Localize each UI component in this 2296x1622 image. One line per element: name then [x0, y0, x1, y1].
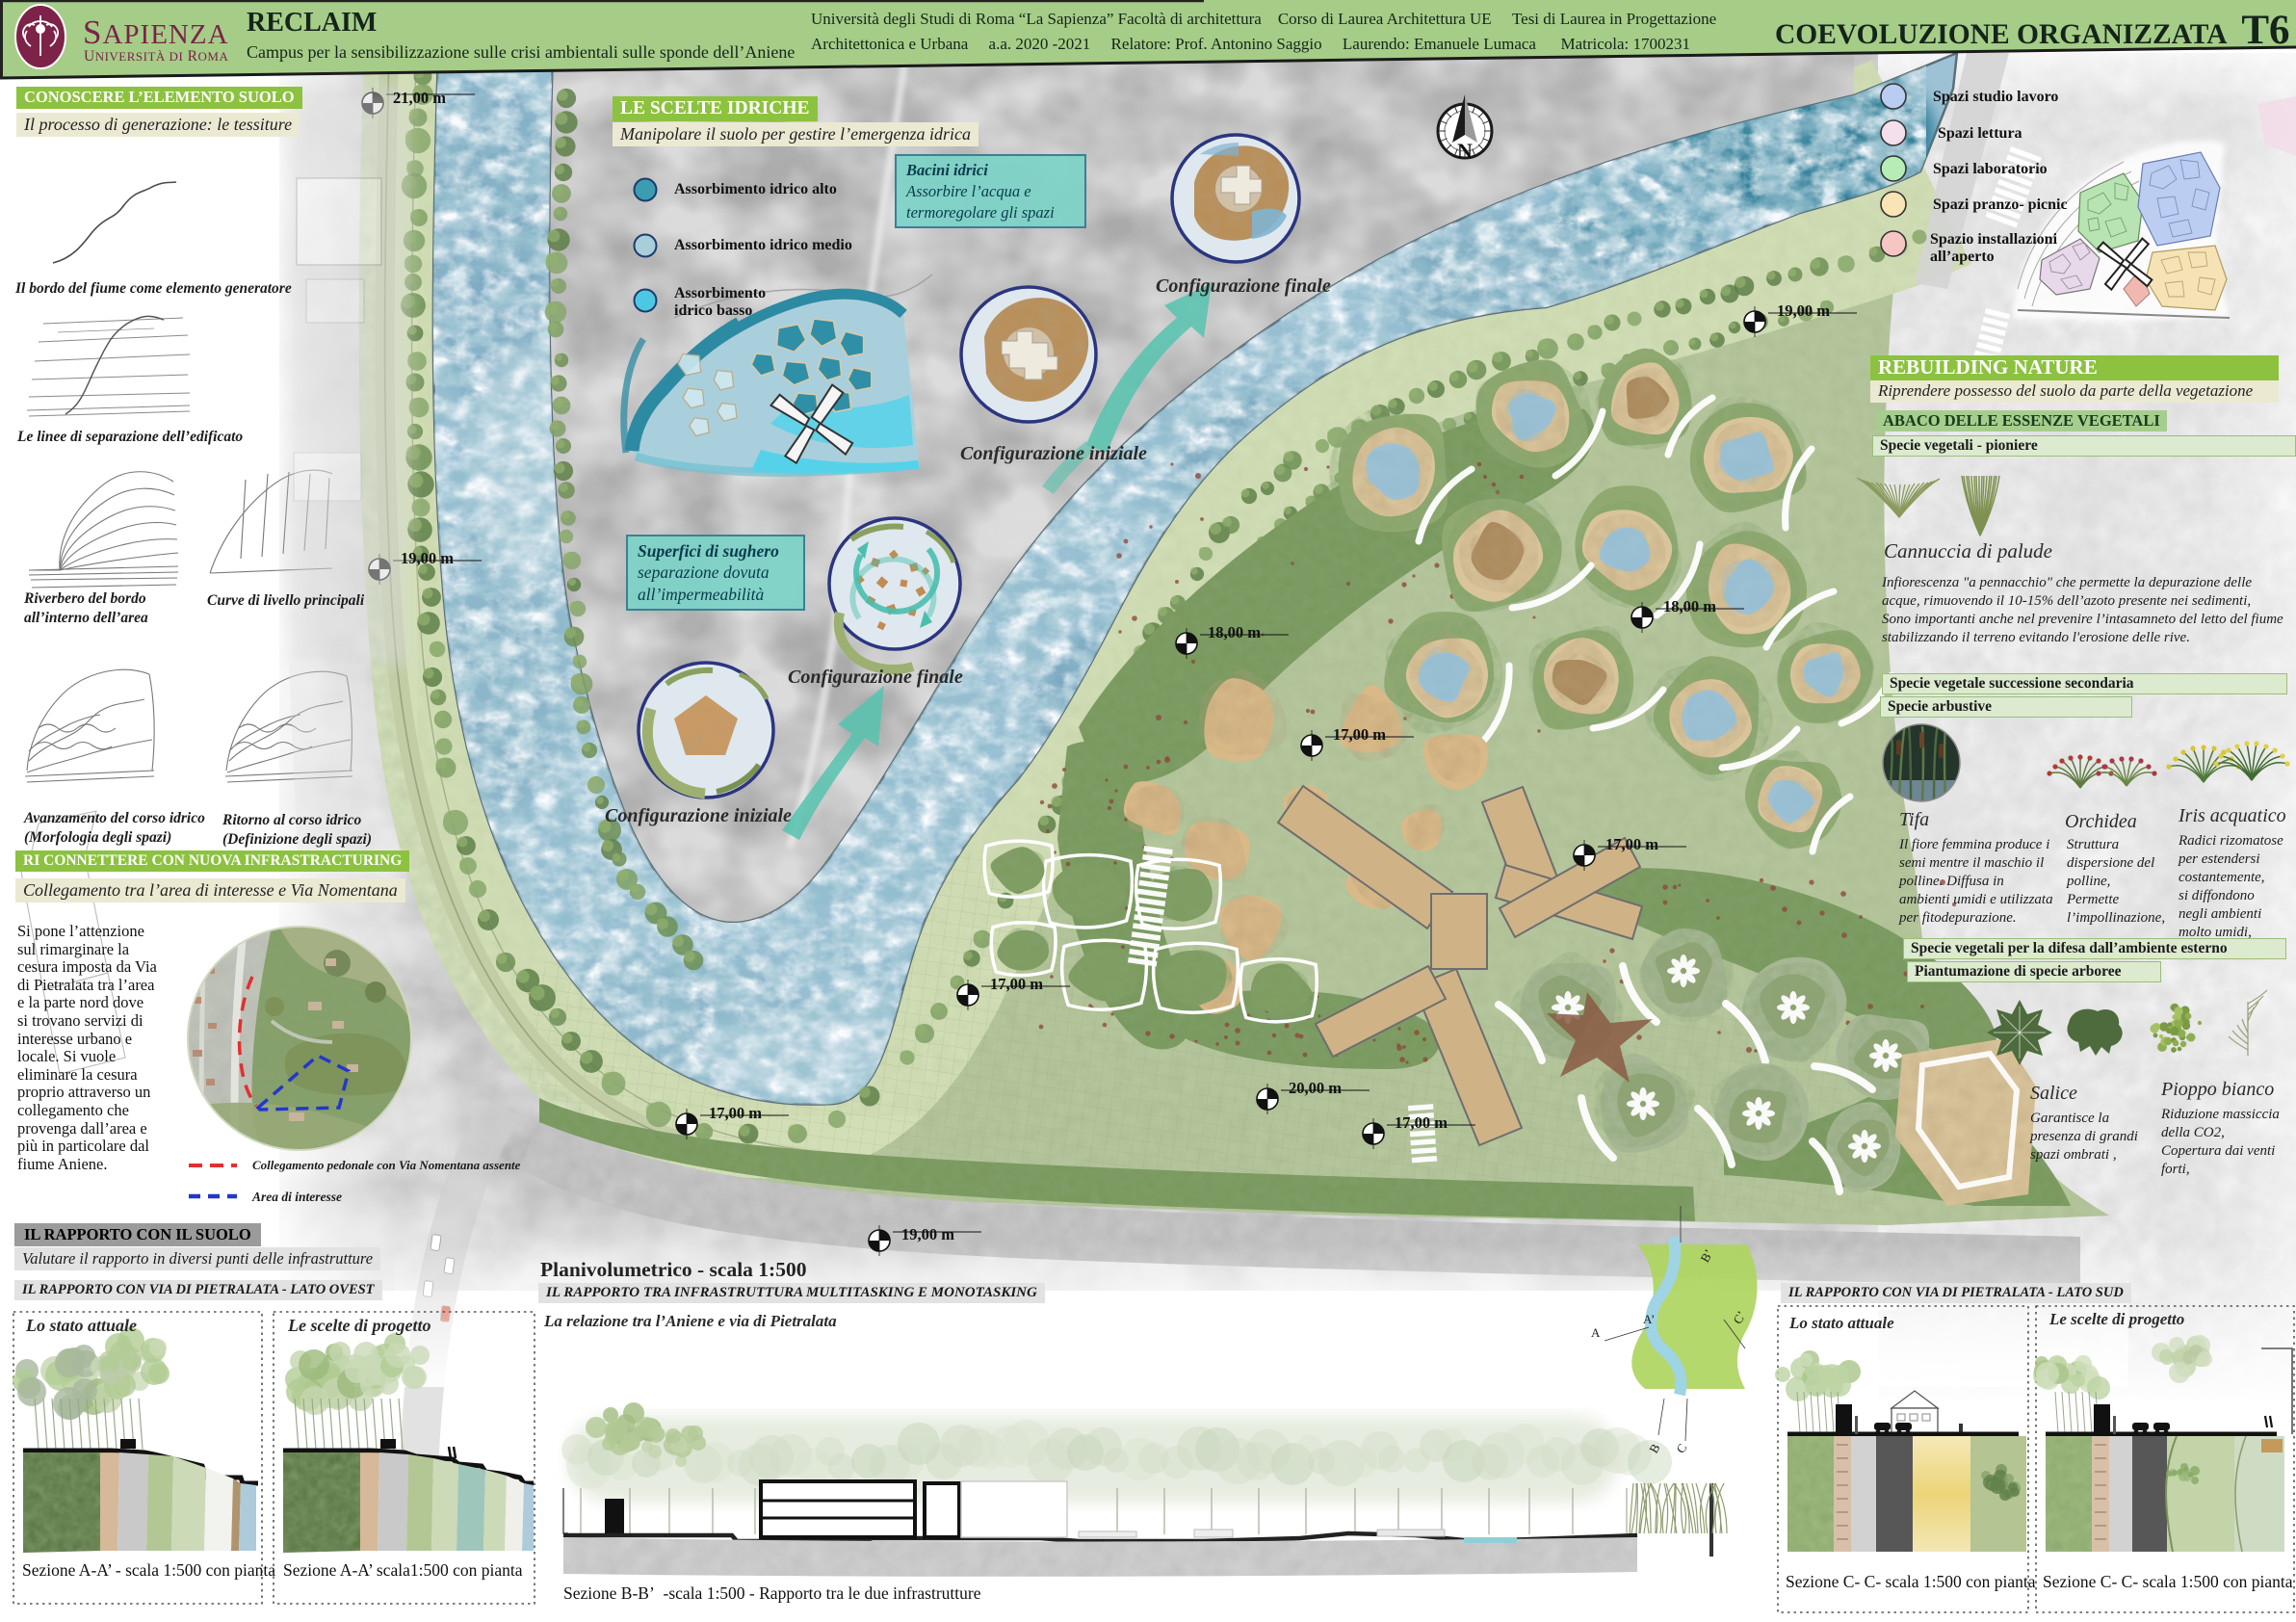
svg-text:N: N: [1457, 139, 1473, 163]
